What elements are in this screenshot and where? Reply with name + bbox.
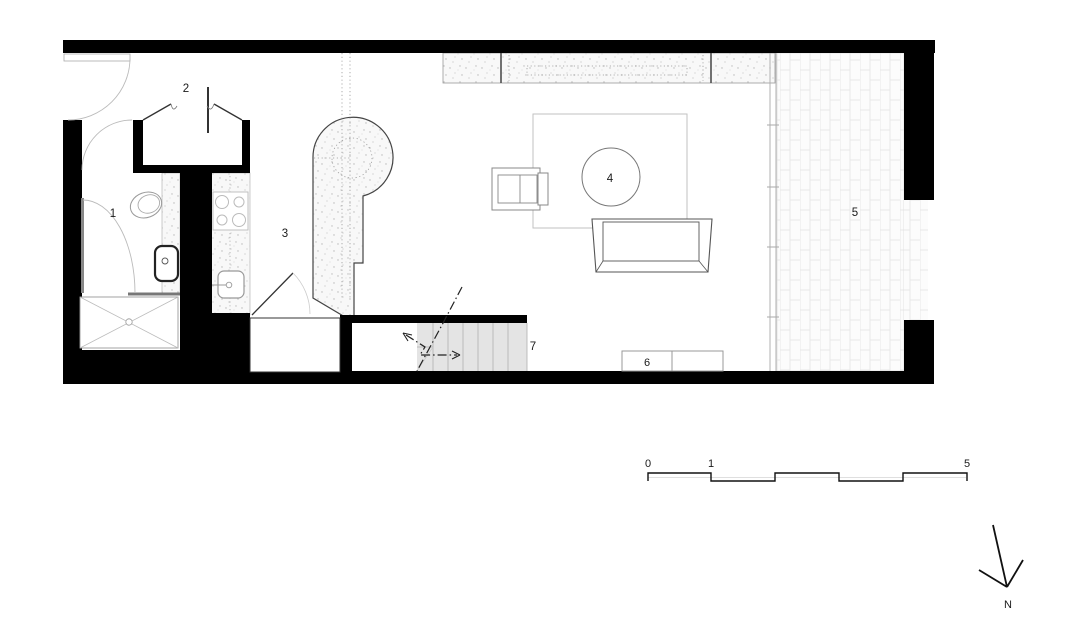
closet-bottom-wall: [133, 165, 250, 173]
bench: [622, 351, 723, 371]
room-label-7: 7: [530, 341, 536, 353]
north-arrow-icon: [979, 525, 1023, 587]
room-label-4: 4: [607, 173, 614, 185]
scale-label-5: 5: [964, 458, 970, 470]
closet-doors: [143, 87, 242, 133]
stair-left-pier: [340, 315, 352, 373]
wall-mass-below-kitchen: [180, 313, 250, 373]
room-label-1: 1: [110, 208, 116, 220]
wall-right-upper: [904, 40, 934, 200]
wall-mass-bottom-left: [63, 350, 180, 375]
round-column-volume: [313, 53, 393, 317]
room-label-3: 3: [282, 228, 288, 240]
wall-bath-kitchen: [180, 173, 212, 318]
stove: [213, 192, 248, 230]
scale-label-1: 1: [708, 458, 714, 470]
room-label-2: 2: [183, 83, 189, 95]
shower: [80, 297, 178, 348]
wall-top: [63, 40, 935, 53]
kitchen-door: [252, 273, 310, 315]
toilet: [127, 188, 166, 222]
wall-left: [63, 120, 82, 371]
north-arrow: N: [979, 525, 1023, 611]
scale-label-0: 0: [645, 458, 651, 470]
staircase: [403, 287, 527, 371]
north-label: N: [1004, 599, 1012, 611]
storage-room: [250, 318, 340, 372]
wall-cabinet-band: [443, 53, 775, 83]
floor-plan-drawing: 1 2 3 4 5 6 7 0 1 5 N: [0, 0, 1083, 626]
bathroom-door: [83, 198, 136, 293]
armchair: [492, 168, 548, 210]
room-label-5: 5: [852, 207, 858, 219]
scale-bar: 0 1 5: [645, 458, 970, 481]
bathroom-sink: [155, 246, 178, 281]
floor-plan-page: 1 2 3 4 5 6 7 0 1 5 N: [0, 0, 1083, 626]
stair-top-wall: [340, 315, 527, 323]
sofa: [592, 219, 712, 272]
room-label-6: 6: [644, 357, 650, 369]
